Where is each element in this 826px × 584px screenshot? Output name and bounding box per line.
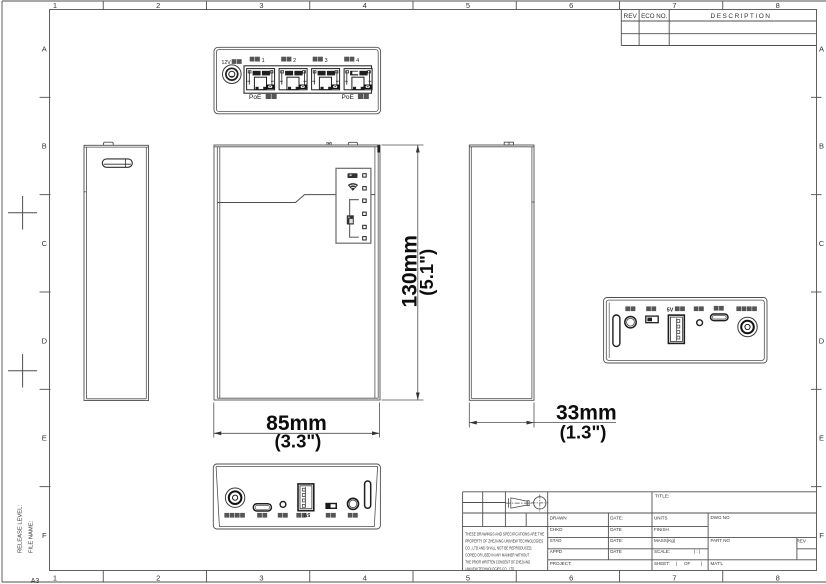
- svg-text:| : |: | : |: [694, 549, 700, 554]
- svg-text:PART NO: PART NO: [711, 538, 731, 543]
- svg-text:D: D: [42, 336, 48, 345]
- svg-text:C: C: [819, 239, 825, 248]
- svg-text:8: 8: [776, 574, 780, 583]
- svg-text:C: C: [42, 239, 48, 248]
- svg-text:|: |: [701, 561, 702, 566]
- svg-text:PoE: PoE: [249, 94, 262, 101]
- svg-text:(5.1"): (5.1"): [416, 249, 437, 296]
- svg-text:5V: 5V: [303, 511, 310, 517]
- svg-text:E: E: [819, 434, 824, 443]
- svg-text:DESCRIPTION: DESCRIPTION: [711, 13, 772, 20]
- svg-text:B: B: [819, 142, 824, 151]
- svg-text:COPIED OR USED IN ANY MANNER W: COPIED OR USED IN ANY MANNER WITHOUT: [465, 552, 529, 557]
- svg-text:E: E: [42, 434, 47, 443]
- svg-text:B: B: [42, 142, 47, 151]
- svg-text:2: 2: [156, 1, 160, 10]
- svg-text:FILE NAME:: FILE NAME:: [29, 520, 35, 553]
- svg-text:REV: REV: [624, 13, 638, 20]
- svg-text:(3.3"): (3.3"): [274, 431, 321, 452]
- svg-text:4: 4: [356, 58, 359, 64]
- svg-text:2: 2: [156, 574, 160, 583]
- svg-text:3: 3: [259, 1, 263, 10]
- svg-text:DWG NO: DWG NO: [711, 515, 730, 520]
- svg-text:DATE:: DATE:: [610, 538, 623, 543]
- svg-text:4: 4: [363, 574, 367, 583]
- svg-text:5V: 5V: [667, 307, 674, 313]
- svg-text:ECO NO.: ECO NO.: [641, 13, 667, 20]
- svg-text:A3: A3: [31, 578, 40, 584]
- svg-text:THE PRIOR WRITTEN CONSENT OF Z: THE PRIOR WRITTEN CONSENT OF ZHEJIANG: [465, 559, 530, 564]
- svg-text:A: A: [42, 44, 47, 53]
- svg-text:THESE DRAWINGS AND SPECIFICATI: THESE DRAWINGS AND SPECIFICATIONS ARE TH…: [465, 532, 544, 537]
- svg-text:5: 5: [466, 1, 470, 10]
- svg-text:DATE: DATE: [610, 527, 622, 532]
- svg-text:PoE: PoE: [342, 94, 355, 101]
- svg-text:3: 3: [325, 58, 328, 64]
- svg-text:|: |: [676, 561, 677, 566]
- svg-text:1: 1: [53, 1, 57, 10]
- svg-text:3: 3: [259, 574, 263, 583]
- svg-text:12V: 12V: [222, 60, 232, 66]
- svg-text:REV: REV: [797, 539, 806, 544]
- svg-text:UNIVIEW TECHNOLOGIES CO., LTD: UNIVIEW TECHNOLOGIES CO., LTD: [465, 566, 514, 571]
- svg-text:7: 7: [672, 1, 676, 10]
- svg-text:D: D: [819, 336, 825, 345]
- svg-text:PROJECT:: PROJECT:: [550, 561, 572, 566]
- svg-text:DATE:: DATE:: [610, 516, 623, 521]
- svg-text:SHEET:: SHEET:: [654, 561, 670, 566]
- svg-text:F: F: [42, 531, 47, 540]
- svg-text:1: 1: [262, 58, 265, 64]
- svg-text:2: 2: [293, 58, 296, 64]
- svg-text:DATE: DATE: [610, 549, 622, 554]
- svg-text:UNITS: UNITS: [654, 516, 668, 521]
- svg-text:5: 5: [466, 574, 470, 583]
- svg-text:4: 4: [363, 1, 367, 10]
- svg-text:8: 8: [776, 1, 780, 10]
- svg-text:A: A: [819, 44, 824, 53]
- svg-text:TITLE:: TITLE:: [655, 494, 669, 500]
- svg-text:FINISH: FINISH: [654, 527, 669, 532]
- svg-text:1: 1: [53, 574, 57, 583]
- svg-text:DRAWN: DRAWN: [550, 516, 567, 521]
- svg-text:RELEASE LEVEL:: RELEASE LEVEL:: [18, 505, 24, 553]
- svg-text:PROPERTY OF ZHEJIANG UNIVIEW T: PROPERTY OF ZHEJIANG UNIVIEW TECHNOLOGIE…: [465, 539, 543, 544]
- svg-text:MASS(Kg): MASS(Kg): [654, 538, 676, 543]
- svg-text:6: 6: [569, 574, 573, 583]
- svg-text:F: F: [819, 531, 824, 540]
- svg-text:(1.3"): (1.3"): [560, 422, 607, 443]
- svg-text:STAD: STAD: [550, 538, 562, 543]
- svg-text:CHKD: CHKD: [550, 527, 564, 532]
- svg-text:MAT'L: MAT'L: [711, 561, 724, 566]
- svg-text:APPD: APPD: [550, 549, 563, 554]
- svg-text:6: 6: [569, 1, 573, 10]
- svg-text:7: 7: [672, 574, 676, 583]
- svg-text:SCALE:: SCALE:: [654, 549, 670, 554]
- svg-text:OF: OF: [684, 561, 691, 566]
- svg-text:CO., LTD AND SHALL NOT BE REP: CO., LTD AND SHALL NOT BE REPRODUCED,: [465, 546, 532, 551]
